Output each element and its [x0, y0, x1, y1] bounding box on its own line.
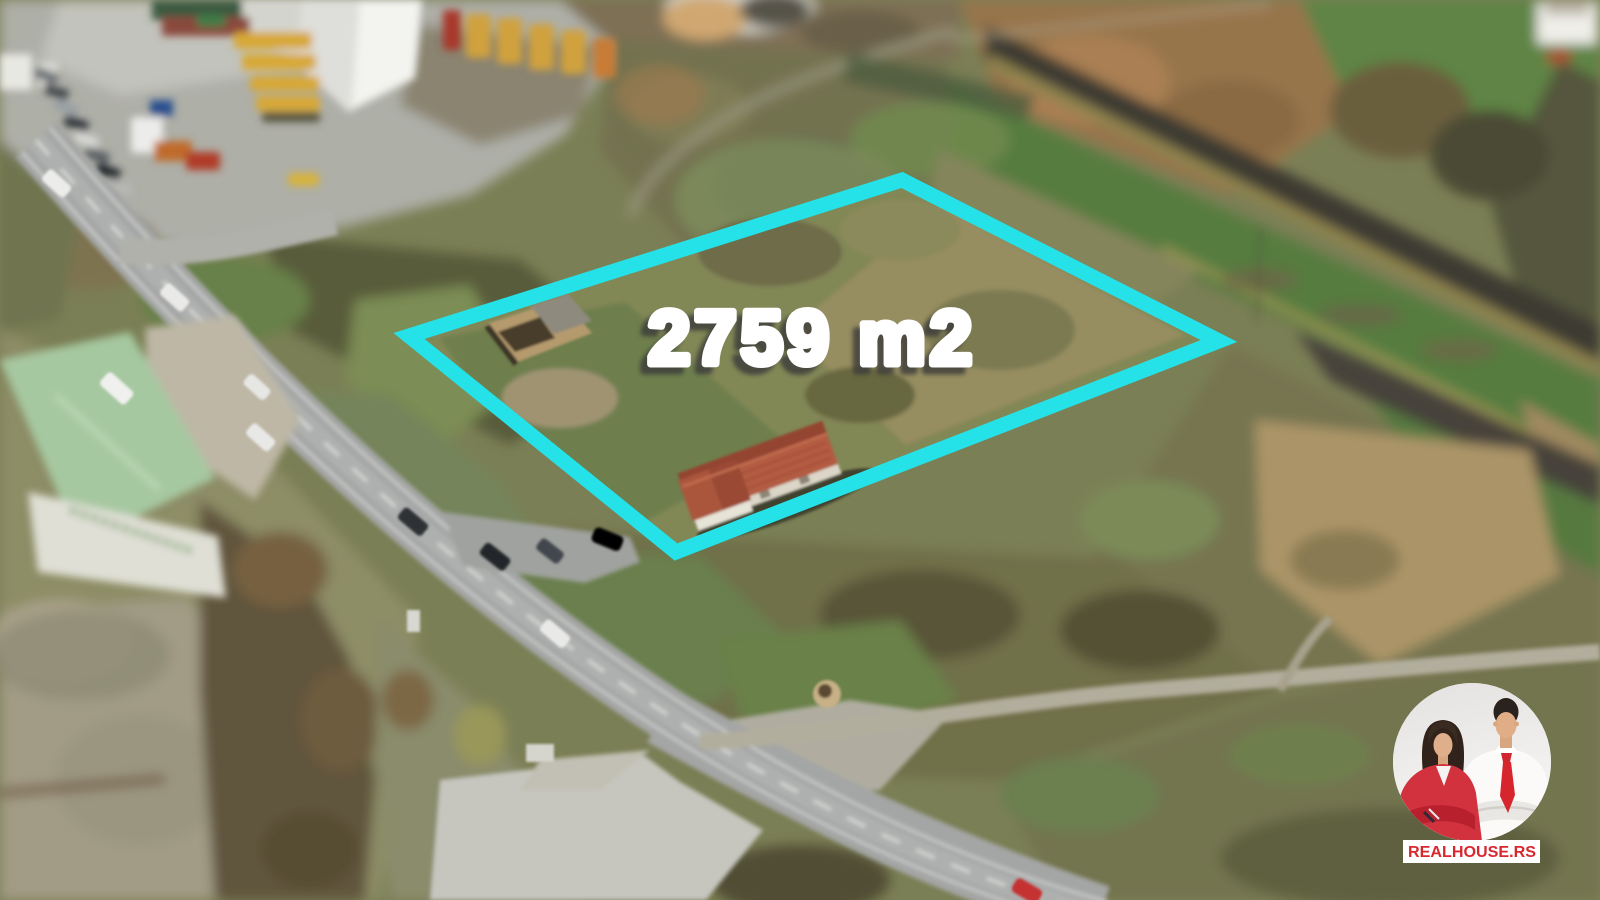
svg-text:REALHOUSE.RS: REALHOUSE.RS [1408, 844, 1536, 861]
svg-text:2759 m2: 2759 m2 [648, 296, 976, 381]
